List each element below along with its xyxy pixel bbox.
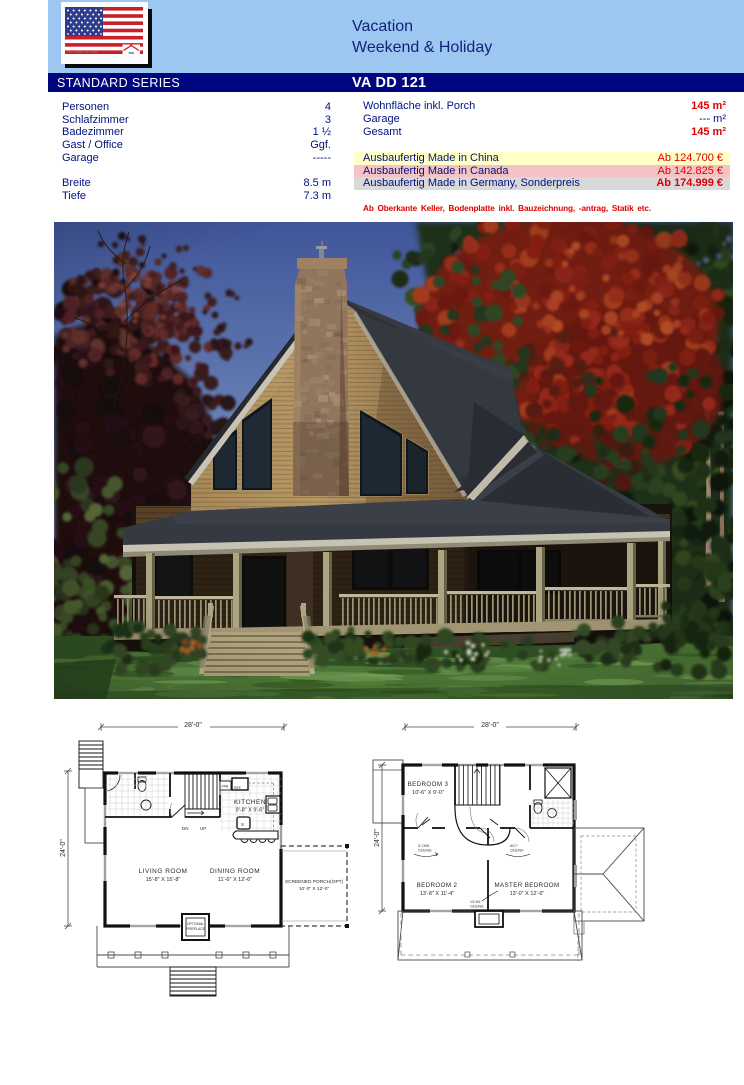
svg-text:DINING ROOM: DINING ROOM	[210, 868, 260, 875]
svg-text:15'-8" X 15'-8": 15'-8" X 15'-8"	[146, 877, 181, 883]
svg-text:24'-0": 24'-0"	[374, 829, 381, 847]
svg-text:PAN: PAN	[222, 785, 229, 789]
svg-text:13'-0" X 12'-6": 13'-0" X 12'-6"	[510, 891, 545, 897]
svg-text:OPTIONAL: OPTIONAL	[187, 922, 204, 926]
svg-text:CEILING: CEILING	[418, 849, 432, 853]
svg-text:LIVING ROOM: LIVING ROOM	[139, 868, 188, 875]
svg-text:SCREENED PORCH(OPT): SCREENED PORCH(OPT)	[285, 879, 344, 885]
svg-text:10'-0" X 12'-0": 10'-0" X 12'-0"	[299, 886, 330, 892]
svg-text:28'-0": 28'-0"	[184, 722, 202, 729]
svg-text:FIREPLACE: FIREPLACE	[186, 927, 206, 931]
svg-text:S: S	[241, 822, 244, 827]
svg-text:KITCHEN: KITCHEN	[234, 799, 266, 806]
svg-text:24'-0": 24'-0"	[60, 839, 67, 857]
svg-text:BEDROOM 2: BEDROOM 2	[417, 882, 458, 889]
svg-text:UP: UP	[200, 826, 206, 831]
svg-text:DN: DN	[182, 826, 189, 831]
svg-text:CEILING: CEILING	[510, 849, 524, 853]
svg-text:9'-8" X 9'-6": 9'-8" X 9'-6"	[236, 808, 265, 814]
svg-text:MASTER BEDROOM: MASTER BEDROOM	[494, 882, 559, 889]
svg-text:13'-8" X 11'-4": 13'-8" X 11'-4"	[420, 891, 454, 897]
svg-text:11'-6" X 12'-6": 11'-6" X 12'-6"	[218, 877, 252, 883]
svg-text:REF.: REF.	[234, 786, 241, 790]
svg-text:A/C?: A/C?	[510, 844, 518, 848]
svg-text:28'-0": 28'-0"	[481, 722, 499, 729]
svg-text:BEDROOM 3: BEDROOM 3	[408, 781, 449, 788]
svg-text:5' CMG: 5' CMG	[418, 844, 430, 848]
svg-text:CEILING: CEILING	[470, 905, 484, 909]
svg-text:1/2 WL: 1/2 WL	[470, 900, 481, 904]
svg-text:10'-6" X 9'-0": 10'-6" X 9'-0"	[412, 790, 444, 796]
